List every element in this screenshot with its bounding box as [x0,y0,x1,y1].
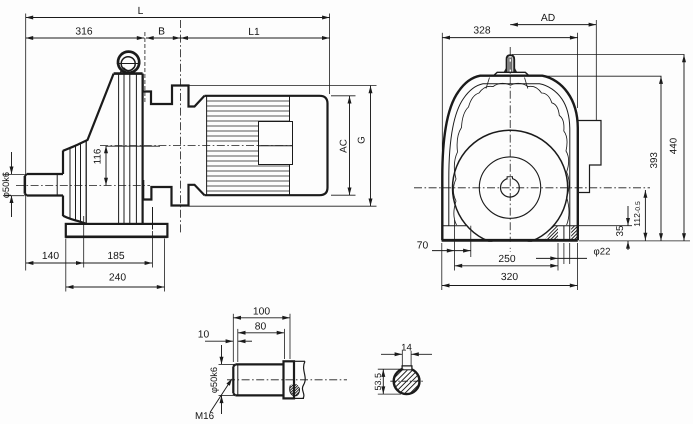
svg-text:10: 10 [198,330,210,341]
svg-text:185: 185 [107,251,124,262]
svg-text:L: L [138,6,144,17]
svg-text:14: 14 [401,343,412,354]
svg-text:G: G [357,136,368,144]
svg-text:L1: L1 [248,27,260,38]
svg-text:53.5: 53.5 [373,373,383,391]
svg-text:320: 320 [501,272,518,283]
svg-text:140: 140 [42,251,59,262]
svg-text:393: 393 [649,152,660,169]
svg-text:35: 35 [615,225,626,236]
svg-text:100: 100 [253,307,270,318]
svg-text:316: 316 [75,27,92,38]
svg-text:250: 250 [498,254,515,265]
svg-text:AC: AC [339,139,350,153]
svg-text:φ22: φ22 [594,246,611,257]
svg-text:φ50k6: φ50k6 [1,172,11,198]
svg-text:440: 440 [669,137,680,154]
svg-text:φ50k6: φ50k6 [209,367,219,393]
svg-text:240: 240 [109,273,126,284]
svg-text:70: 70 [417,240,429,251]
svg-text:328: 328 [473,26,490,37]
svg-text:116: 116 [92,148,103,164]
svg-text:M16: M16 [195,411,215,422]
svg-text:80: 80 [255,322,267,333]
svg-text:AD: AD [541,13,555,24]
svg-text:B: B [158,27,165,38]
